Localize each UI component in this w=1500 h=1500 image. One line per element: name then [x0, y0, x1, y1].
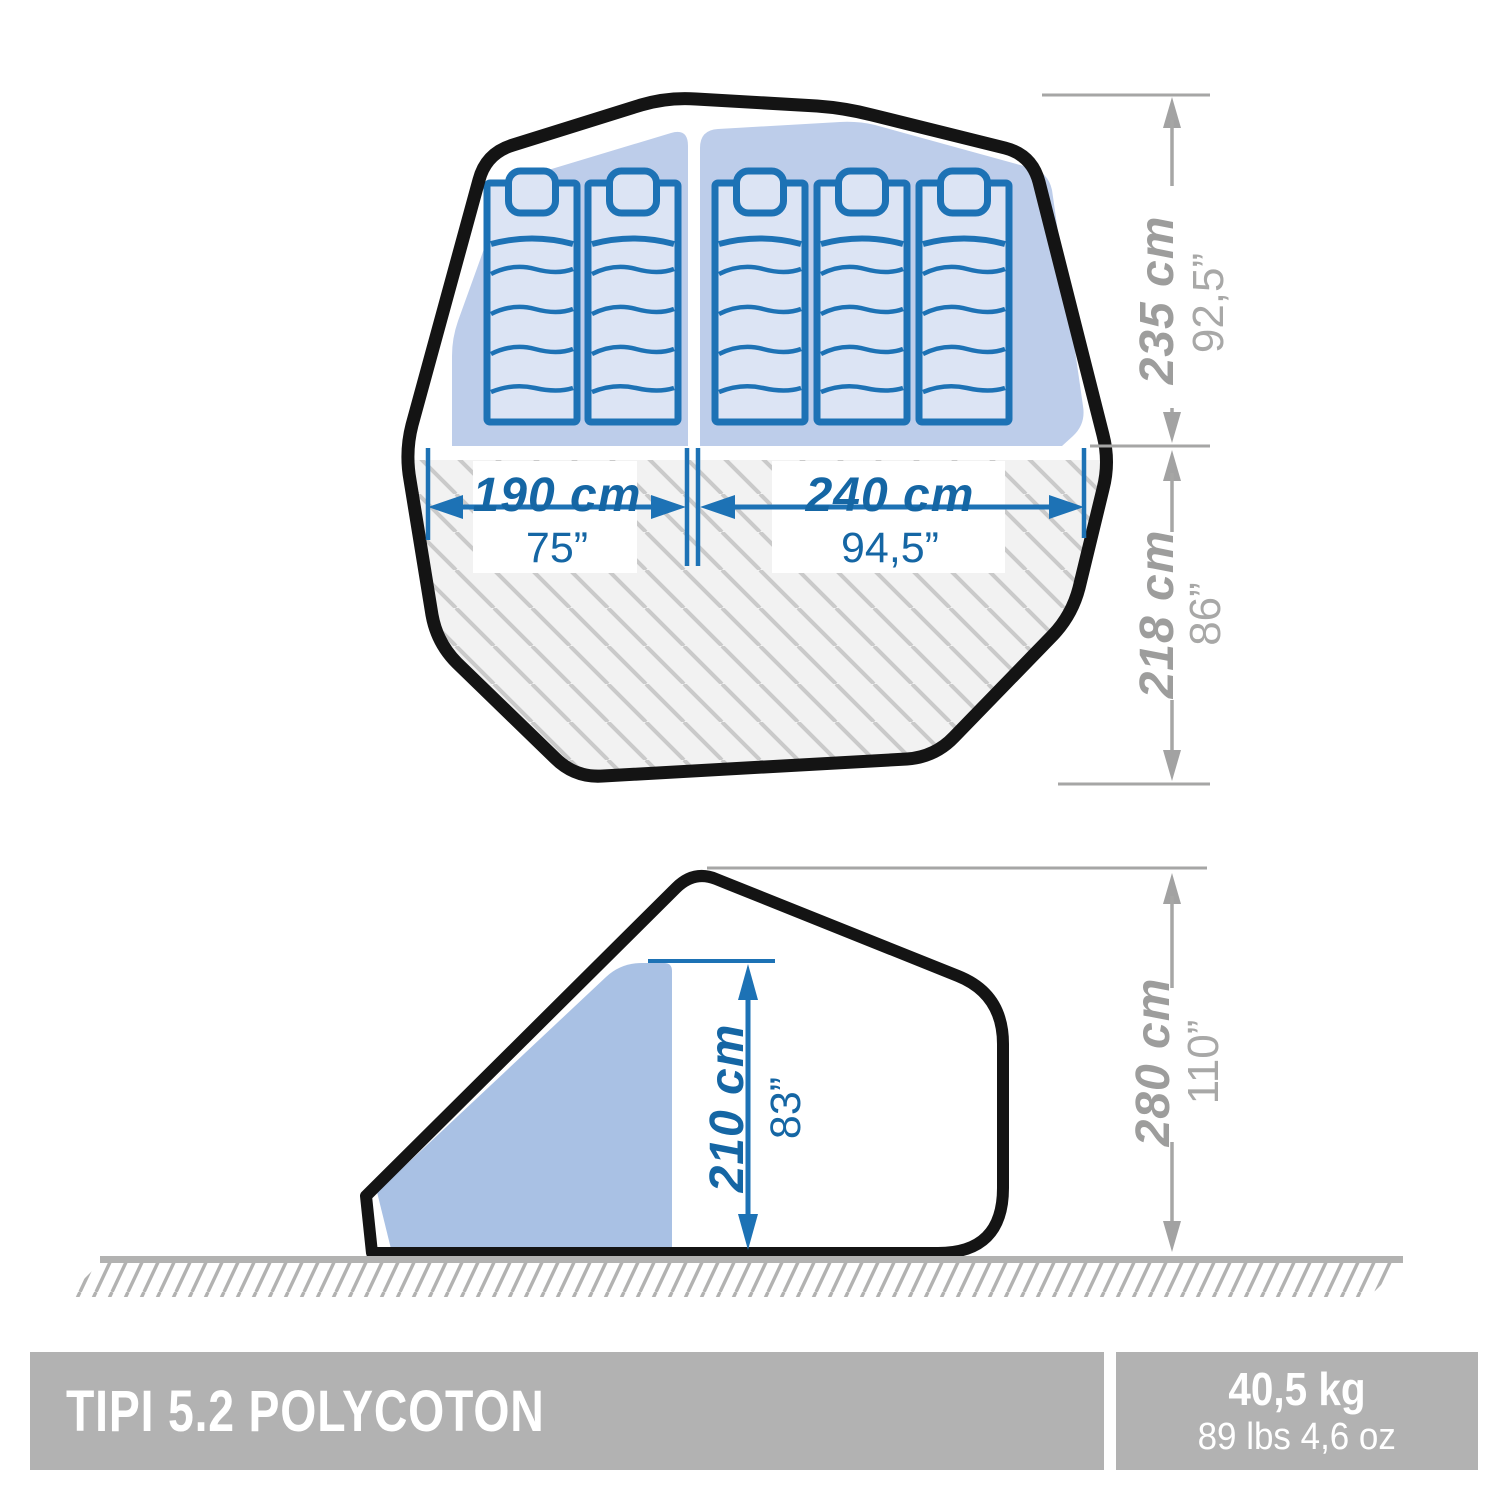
sleeping-depth-in: 92,5” [1177, 133, 1241, 473]
bedroom-right-width-in: 94,5” [730, 524, 1050, 573]
interior-height-cm: 210 cm [695, 938, 759, 1278]
mattresses [487, 171, 1009, 422]
product-name-bar: TIPI 5.2 POLYCOTON [30, 1352, 1104, 1470]
weight-bar: 40,5 kg 89 lbs 4,6 oz [1116, 1352, 1478, 1470]
living-depth-in: 86” [1174, 444, 1238, 784]
product-name: TIPI 5.2 POLYCOTON [66, 1378, 545, 1445]
weight-metric: 40,5 kg [1228, 1363, 1365, 1415]
cabin-area [377, 963, 672, 1253]
bedroom-right-width-cm: 240 cm [730, 468, 1050, 523]
total-height-in: 110” [1172, 892, 1236, 1232]
bedroom-left-width-cm: 190 cm [397, 468, 717, 523]
bedroom-left-width-in: 75” [397, 524, 717, 573]
tent-top-view [398, 95, 1210, 786]
weight-imperial: 89 lbs 4,6 oz [1198, 1415, 1396, 1459]
tent-dimensions-diagram: 190 cm 75” 240 cm 94,5” 235 cm 92,5” 218… [0, 0, 1500, 1500]
interior-height-in: 83” [754, 938, 818, 1278]
